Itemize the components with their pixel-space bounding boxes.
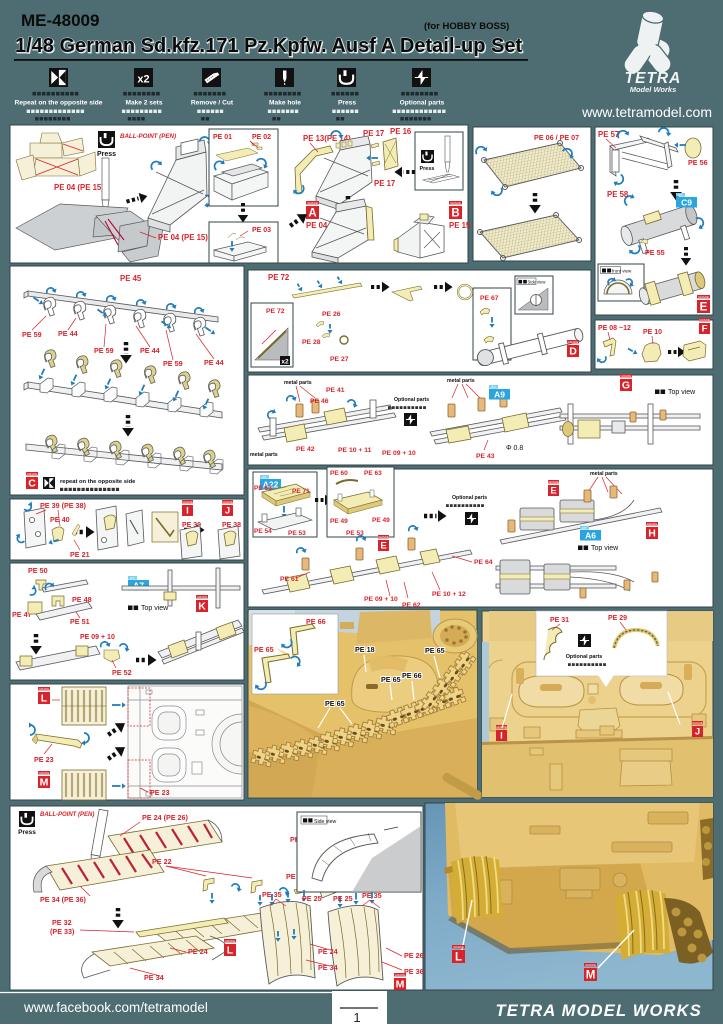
svg-text:PE 17: PE 17 (363, 129, 384, 138)
svg-text:J: J (225, 505, 230, 516)
svg-text:PE 57: PE 57 (598, 130, 619, 139)
svg-text:GRADE: GRADE (307, 201, 318, 205)
svg-text:PE 39 (PE 38): PE 39 (PE 38) (40, 501, 87, 510)
svg-text:M: M (586, 969, 596, 981)
svg-text:D: D (569, 345, 577, 357)
svg-text:M: M (396, 978, 405, 990)
svg-text:PE 24: PE 24 (188, 947, 208, 956)
svg-text:PE 53: PE 53 (288, 530, 306, 537)
svg-text:Press: Press (420, 166, 435, 172)
svg-text:PE 55: PE 55 (645, 248, 665, 257)
svg-text:PE 10: PE 10 (643, 329, 662, 336)
svg-text:GRADE: GRADE (27, 472, 38, 476)
svg-text:GRADE: GRADE (395, 973, 406, 977)
svg-text:GRADE: GRADE (450, 201, 461, 205)
svg-text:A6: A6 (585, 530, 596, 540)
svg-text:PE 72: PE 72 (266, 308, 285, 315)
svg-text:PE 17: PE 17 (374, 179, 395, 188)
svg-text:GRADE: GRADE (699, 318, 710, 322)
svg-text:Make 2 sets: Make 2 sets (125, 100, 162, 107)
svg-text:Optional parts: Optional parts (400, 100, 445, 107)
svg-text:PE 36: PE 36 (404, 967, 424, 976)
svg-text:L: L (227, 944, 234, 956)
svg-text:PE 25: PE 25 (302, 894, 322, 903)
svg-text:Side view: Side view (314, 819, 336, 825)
svg-text:repeat on the opposite side: repeat on the opposite side (60, 479, 136, 485)
svg-text:PE 21: PE 21 (70, 550, 90, 559)
svg-text:PE 51: PE 51 (70, 617, 90, 626)
svg-text:Φ 0.8: Φ 0.8 (506, 445, 523, 452)
svg-text:PE 35: PE 35 (262, 890, 282, 899)
svg-text:PE 24 (PE 26): PE 24 (PE 26) (142, 813, 189, 822)
svg-text:PE 61: PE 61 (280, 576, 299, 583)
svg-text:PE 15: PE 15 (449, 221, 471, 230)
svg-text:metal parts: metal parts (447, 378, 475, 384)
svg-text:A: A (308, 207, 316, 219)
svg-text:PE 44: PE 44 (140, 346, 160, 355)
svg-text:PE 24: PE 24 (318, 947, 338, 956)
svg-text:GRADE: GRADE (378, 535, 389, 539)
svg-text:PE 04 (PE 15): PE 04 (PE 15) (158, 233, 208, 242)
svg-text:F: F (702, 323, 708, 334)
svg-text:GRADE: GRADE (548, 480, 559, 484)
svg-text:x2: x2 (281, 359, 289, 366)
svg-text:K: K (198, 600, 206, 612)
svg-text:L: L (455, 951, 462, 963)
svg-text:PE 52: PE 52 (112, 668, 132, 677)
svg-text:PE 54: PE 54 (254, 528, 272, 535)
svg-text:Repeat on the opposite side: Repeat on the opposite side (15, 100, 103, 107)
svg-text:Make hole: Make hole (269, 100, 301, 107)
svg-text:PE 26: PE 26 (404, 951, 424, 960)
svg-text:PE 34 (PE 36): PE 34 (PE 36) (40, 895, 87, 904)
svg-text:PE 31: PE 31 (550, 617, 569, 624)
svg-text:PE 49: PE 49 (330, 518, 348, 525)
svg-text:PE 63: PE 63 (364, 470, 382, 477)
svg-text:Model Works: Model Works (630, 85, 677, 94)
svg-text:Top view: Top view (668, 389, 696, 396)
svg-text:E: E (700, 301, 708, 313)
svg-text:PE 28: PE 28 (302, 339, 321, 346)
svg-text:PE 35: PE 35 (362, 891, 382, 900)
svg-text:E: E (550, 485, 556, 496)
svg-text:GRADE: GRADE (568, 340, 579, 344)
svg-text:GRADE: GRADE (39, 771, 50, 775)
svg-text:PE 32: PE 32 (52, 918, 72, 927)
svg-text:GRADE: GRADE (585, 963, 596, 967)
svg-text:PE 06 / PE 07: PE 06 / PE 07 (534, 133, 579, 142)
svg-text:PE 65: PE 65 (381, 675, 401, 684)
svg-text:metal parts: metal parts (250, 452, 278, 458)
svg-text:PE 59: PE 59 (163, 359, 183, 368)
svg-text:front view: front view (612, 269, 632, 274)
svg-text:GRADE: GRADE (698, 295, 709, 299)
svg-text:PE 10 + 11: PE 10 + 11 (338, 447, 372, 454)
svg-text:PE 02: PE 02 (252, 134, 271, 141)
svg-text:PE 67: PE 67 (480, 295, 499, 302)
svg-text:PE 62: PE 62 (402, 602, 421, 609)
svg-text:PE 71: PE 71 (292, 488, 310, 495)
svg-text:Optional parts: Optional parts (394, 397, 429, 403)
svg-text:PE 64: PE 64 (474, 559, 493, 566)
svg-text:(for HOBBY BOSS): (for HOBBY BOSS) (424, 21, 509, 32)
svg-text:PE 45: PE 45 (120, 274, 142, 283)
svg-text:C9: C9 (681, 197, 692, 207)
svg-text:Press: Press (338, 100, 356, 107)
svg-text:PE 04 (PE 15): PE 04 (PE 15) (54, 183, 104, 192)
svg-text:Optional parts: Optional parts (566, 654, 603, 660)
svg-text:Press: Press (97, 151, 116, 158)
svg-text:PE 65: PE 65 (254, 645, 274, 654)
svg-text:M: M (40, 776, 49, 788)
svg-text:PE 56: PE 56 (688, 158, 708, 167)
svg-text:1/48 German Sd.kfz.171 Pz.Kpfw: 1/48 German Sd.kfz.171 Pz.Kpfw. Ausf A D… (15, 35, 522, 57)
svg-text:www.facebook.com/tetramodel: www.facebook.com/tetramodel (23, 1000, 208, 1015)
svg-text:PE 65: PE 65 (425, 646, 445, 655)
svg-text:Remove / Cut: Remove / Cut (191, 100, 234, 107)
svg-text:H: H (648, 527, 656, 539)
svg-text:PE 26: PE 26 (322, 311, 341, 318)
svg-text:PE 43: PE 43 (476, 453, 495, 460)
svg-text:Press: Press (18, 829, 36, 836)
svg-text:metal parts: metal parts (590, 471, 618, 477)
svg-text:PE 23: PE 23 (34, 755, 54, 764)
svg-text:PE 53: PE 53 (254, 485, 272, 492)
svg-text:PE 42: PE 42 (296, 446, 315, 453)
svg-text:PE 09 + 10: PE 09 + 10 (80, 634, 115, 641)
svg-text:Optional parts: Optional parts (452, 495, 487, 501)
svg-text:PE 50: PE 50 (28, 566, 48, 575)
svg-text:PE 44: PE 44 (58, 329, 78, 338)
svg-text:metal parts: metal parts (284, 380, 312, 386)
svg-text:1: 1 (353, 1010, 360, 1024)
svg-text:L: L (41, 692, 48, 704)
svg-text:PE 01: PE 01 (213, 134, 232, 141)
svg-text:PE 04: PE 04 (306, 221, 328, 230)
svg-text:GRADE: GRADE (692, 721, 703, 725)
svg-text:PE 27: PE 27 (330, 356, 349, 363)
svg-text:x2: x2 (137, 74, 149, 86)
svg-text:BALL-POINT (PEN): BALL-POINT (PEN) (120, 133, 176, 140)
svg-text:PE 66: PE 66 (402, 671, 422, 680)
svg-text:PE 65: PE 65 (325, 699, 345, 708)
svg-text:PE 16: PE 16 (390, 127, 412, 136)
svg-text:GRADE: GRADE (496, 725, 507, 729)
svg-text:PE 59: PE 59 (22, 330, 42, 339)
svg-text:GRADE: GRADE (621, 374, 632, 378)
svg-text:PE 72: PE 72 (268, 273, 290, 282)
svg-text:PE 29: PE 29 (608, 615, 627, 622)
svg-text:GRADE: GRADE (647, 522, 658, 526)
svg-text:E: E (380, 540, 386, 551)
svg-text:PE 34: PE 34 (318, 963, 338, 972)
svg-text:GRADE: GRADE (453, 945, 464, 949)
svg-text:I: I (500, 730, 503, 741)
svg-text:Top view: Top view (591, 545, 619, 552)
svg-text:Top view: Top view (141, 605, 169, 612)
svg-text:PE 66: PE 66 (306, 617, 326, 626)
svg-text:A9: A9 (494, 389, 505, 399)
svg-text:GRADE: GRADE (222, 500, 233, 504)
svg-text:PE 22: PE 22 (152, 857, 172, 866)
svg-text:Side view: Side view (528, 280, 547, 285)
svg-text:BALL-POINT (PEN): BALL-POINT (PEN) (40, 812, 94, 818)
svg-text:PE 09 + 10: PE 09 + 10 (364, 596, 398, 603)
svg-text:PE 23: PE 23 (150, 788, 170, 797)
svg-text:ME-48009: ME-48009 (21, 11, 99, 30)
svg-text:GRADE: GRADE (182, 500, 193, 504)
svg-text:PE 03: PE 03 (252, 227, 271, 234)
svg-text:PE 10 + 12: PE 10 + 12 (432, 591, 466, 598)
svg-text:TETRA MODEL WORKS: TETRA MODEL WORKS (496, 1002, 702, 1020)
svg-text:J: J (695, 726, 700, 737)
svg-text:www.tetramodel.com: www.tetramodel.com (581, 104, 712, 120)
svg-text:C: C (28, 477, 36, 489)
svg-text:PE 44: PE 44 (204, 358, 224, 367)
svg-text:PE 09 + 10: PE 09 + 10 (382, 450, 416, 457)
svg-text:GRADE: GRADE (225, 939, 236, 943)
svg-text:PE 46: PE 46 (310, 398, 329, 405)
svg-text:PE 49: PE 49 (372, 517, 390, 524)
svg-text:GRADE: GRADE (197, 595, 208, 599)
svg-text:G: G (622, 379, 630, 391)
svg-text:GRADE: GRADE (39, 687, 50, 691)
svg-text:PE 25: PE 25 (333, 894, 353, 903)
svg-text:B: B (451, 207, 459, 219)
svg-text:I: I (186, 505, 189, 516)
svg-text:PE 18: PE 18 (355, 645, 375, 654)
svg-text:PE 59: PE 59 (94, 346, 114, 355)
svg-text:(PE 33): (PE 33) (50, 927, 75, 936)
svg-text:PE 08 ~12: PE 08 ~12 (598, 325, 631, 332)
svg-text:PE 60: PE 60 (330, 470, 348, 477)
svg-text:PE 41: PE 41 (326, 387, 345, 394)
